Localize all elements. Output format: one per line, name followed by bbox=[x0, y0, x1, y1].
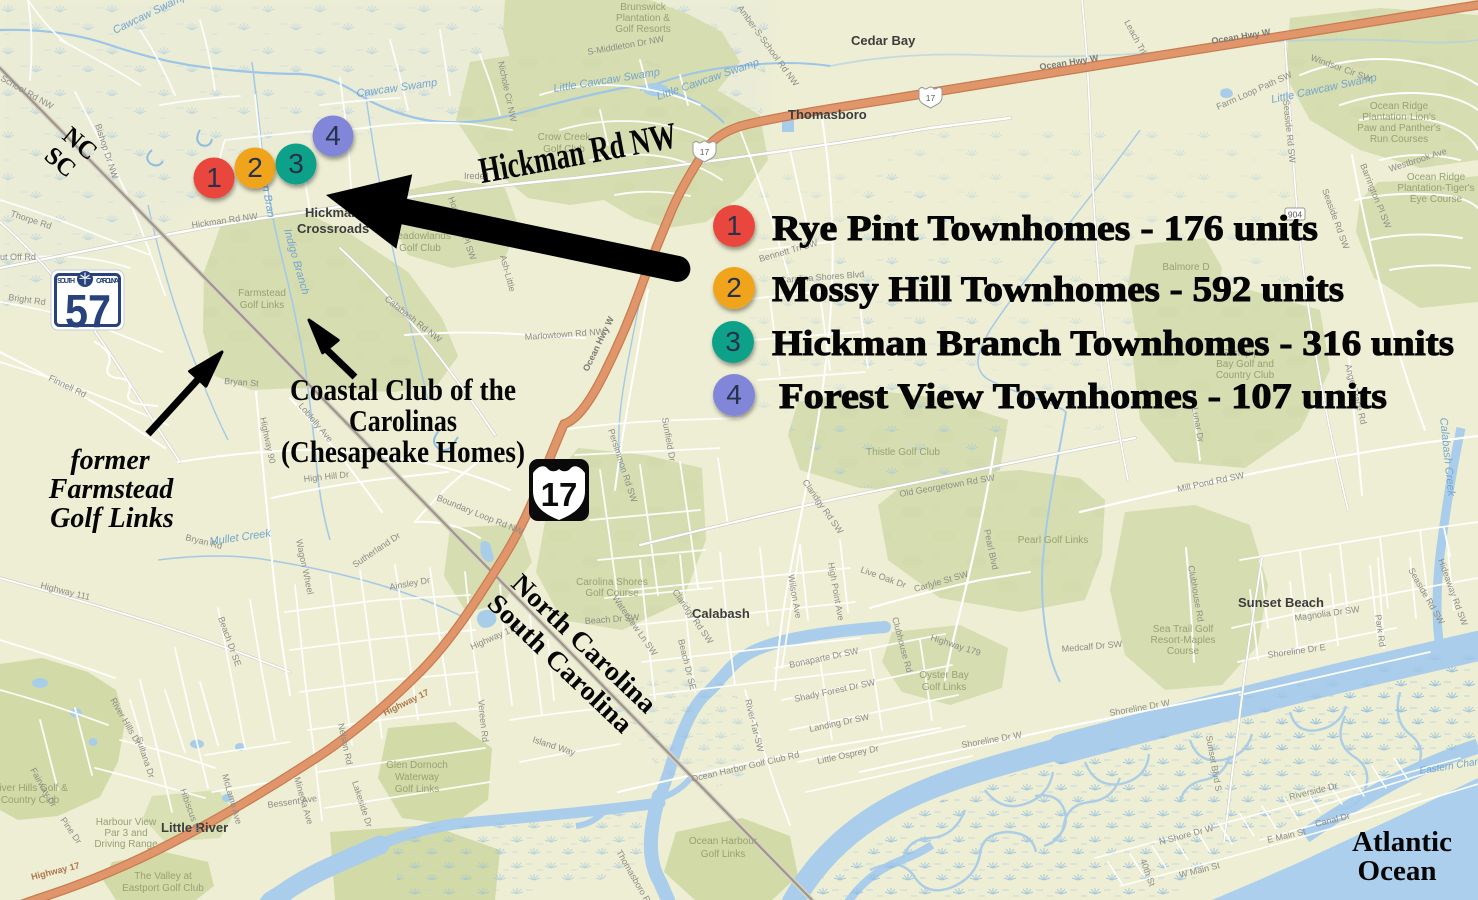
svg-text:Pearl Golf Links: Pearl Golf Links bbox=[1018, 535, 1089, 546]
svg-text:Brunswick: Brunswick bbox=[620, 2, 667, 13]
svg-text:Oyster Bay: Oyster Bay bbox=[919, 670, 968, 681]
svg-text:Thomasboro: Thomasboro bbox=[788, 107, 867, 122]
svg-text:Coastal Club of the: Coastal Club of the bbox=[290, 372, 516, 407]
svg-text:Cedar Bay: Cedar Bay bbox=[851, 33, 916, 48]
svg-text:Plantation-Lion's: Plantation-Lion's bbox=[1362, 112, 1436, 123]
svg-text:Farmstead: Farmstead bbox=[48, 474, 174, 505]
svg-text:Golf Links: Golf Links bbox=[395, 784, 439, 795]
svg-text:2: 2 bbox=[726, 272, 742, 303]
svg-text:Crossroads: Crossroads bbox=[297, 221, 369, 236]
svg-text:Resort-Maples: Resort-Maples bbox=[1150, 635, 1215, 646]
svg-text:ut Off Rd: ut Off Rd bbox=[0, 252, 36, 262]
svg-text:17: 17 bbox=[926, 93, 936, 103]
svg-text:Plantation &: Plantation & bbox=[616, 13, 670, 24]
svg-text:Carolina Shores: Carolina Shores bbox=[576, 577, 648, 588]
svg-text:4: 4 bbox=[325, 120, 341, 151]
svg-text:Harbour View: Harbour View bbox=[96, 817, 157, 828]
svg-text:17: 17 bbox=[700, 147, 710, 157]
svg-text:Sea Trail Golf: Sea Trail Golf bbox=[1153, 624, 1214, 635]
svg-text:1: 1 bbox=[206, 162, 222, 193]
svg-text:Thistle Golf Club: Thistle Golf Club bbox=[866, 447, 940, 458]
svg-text:2: 2 bbox=[247, 152, 263, 183]
svg-text:Rye Pint Townhomes - 176 units: Rye Pint Townhomes - 176 units bbox=[772, 208, 1318, 248]
svg-text:CAROLINA: CAROLINA bbox=[96, 278, 119, 285]
svg-text:3: 3 bbox=[725, 326, 741, 357]
svg-text:Eastport Golf Club: Eastport Golf Club bbox=[122, 883, 204, 894]
svg-text:17: 17 bbox=[541, 476, 578, 513]
svg-text:57: 57 bbox=[65, 285, 111, 337]
svg-text:Waterway: Waterway bbox=[395, 772, 439, 783]
svg-text:Glen Dornoch: Glen Dornoch bbox=[386, 760, 448, 771]
svg-text:River Hills Golf &: River Hills Golf & bbox=[0, 783, 68, 794]
svg-text:1: 1 bbox=[726, 210, 742, 241]
svg-text:former: former bbox=[70, 445, 150, 476]
svg-text:Par 3 and: Par 3 and bbox=[104, 828, 147, 839]
svg-text:Golf Links: Golf Links bbox=[701, 849, 745, 860]
svg-text:Golf Club: Golf Club bbox=[399, 243, 441, 254]
svg-text:Mossy Hill Townhomes - 592 uni: Mossy Hill Townhomes - 592 units bbox=[772, 269, 1344, 309]
svg-text:(Chesapeake Homes): (Chesapeake Homes) bbox=[281, 434, 525, 469]
svg-text:Forest View Townhomes - 107 un: Forest View Townhomes - 107 units bbox=[779, 376, 1387, 416]
svg-text:3: 3 bbox=[288, 148, 304, 179]
svg-text:Ocean Ridge: Ocean Ridge bbox=[1407, 172, 1466, 183]
svg-text:Golf Links: Golf Links bbox=[922, 682, 966, 693]
svg-text:Golf Links: Golf Links bbox=[240, 300, 284, 311]
svg-text:4: 4 bbox=[726, 379, 742, 410]
svg-text:Ocean Ridge: Ocean Ridge bbox=[1370, 101, 1429, 112]
svg-text:The Valley at: The Valley at bbox=[134, 871, 192, 882]
svg-text:Ocean: Ocean bbox=[1358, 855, 1437, 887]
svg-text:Driving Range: Driving Range bbox=[94, 839, 158, 850]
svg-text:Plantation-Tiger's: Plantation-Tiger's bbox=[1397, 183, 1474, 194]
svg-text:Golf Links: Golf Links bbox=[50, 503, 174, 534]
svg-text:Sunset Beach: Sunset Beach bbox=[1238, 595, 1324, 610]
svg-text:Ocean Harbour: Ocean Harbour bbox=[689, 836, 758, 847]
svg-text:Paw and Panther's: Paw and Panther's bbox=[1357, 123, 1441, 134]
svg-text:SOUTH: SOUTH bbox=[57, 278, 75, 285]
svg-text:Hickman Branch Townhomes - 316: Hickman Branch Townhomes - 316 units bbox=[772, 323, 1454, 363]
svg-text:Farmstead: Farmstead bbox=[238, 288, 286, 299]
svg-text:Eye Course: Eye Course bbox=[1410, 194, 1463, 205]
svg-text:Course: Course bbox=[1167, 646, 1200, 657]
svg-text:Carolinas: Carolinas bbox=[349, 403, 457, 438]
svg-text:Atlantic: Atlantic bbox=[1352, 826, 1452, 858]
svg-text:Run Courses: Run Courses bbox=[1370, 134, 1428, 145]
